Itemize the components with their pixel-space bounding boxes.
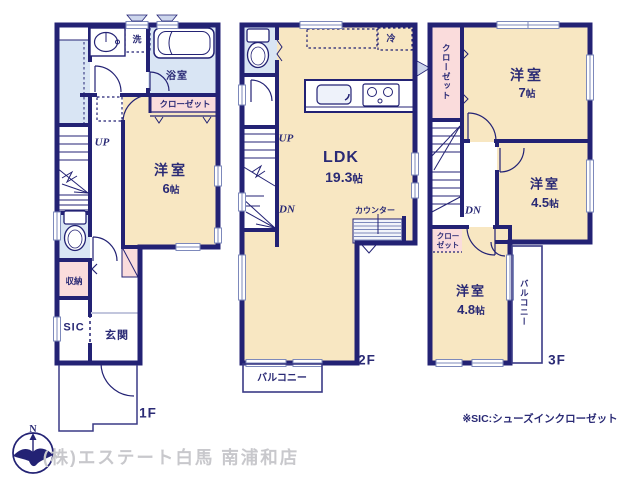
company-name: (株)エステート白馬 南浦和店 [43,449,300,467]
sink-icon [90,28,125,56]
size-unit: 帖 [170,185,180,196]
label-storage: 収納 [65,277,82,286]
label-counter: カウンター [355,207,395,215]
label-sic: SIC [63,323,84,334]
bathtub-icon [154,28,214,58]
floor-label-2f: 2F [358,353,376,367]
porch-outline [59,365,137,431]
kitchen-island-icon [305,80,415,112]
label-bedroom7-size: 7帖 [519,86,536,100]
label-laundry: 洗 [132,36,141,45]
size-unit: 帖 [526,89,536,100]
label-closet-small-2: ゼット [437,241,460,249]
label-bedroom48-size: 4.8帖 [457,303,485,317]
washer-space-icon [97,97,122,121]
label-bedroom45: 洋室 [530,178,560,191]
label-bedroom-1f: 洋室 [154,163,188,177]
label-closet-1f: クローゼット [159,100,210,109]
label-ldk-size: 19.3帖 [325,170,363,185]
toilet-icon-1f [64,211,86,251]
size-number: 4.8 [457,302,475,317]
size-unit: 帖 [475,306,485,317]
stairs-3f-icon [430,126,462,213]
label-bedroom7: 洋室 [510,68,544,82]
label-fridge: 冷 [386,35,395,44]
label-dn-3f: DN [465,206,481,217]
label-up-1f: UP [95,138,110,149]
size-unit: 帖 [549,199,559,210]
sic-note: ※SIC:シューズインクローゼット [462,414,617,425]
label-bedroom-1f-size: 6帖 [163,182,180,196]
label-bathroom: 浴室 [166,72,188,82]
toilet-icon-2f [247,29,269,68]
size-unit: 帖 [352,173,363,185]
shelf-icon [122,247,138,277]
label-closet-small-1: クロー [437,232,460,240]
size-number: 4.5 [531,195,549,210]
label-balcony-3f: バルコニー [520,279,529,327]
floorplan-drawing [0,0,640,480]
label-closet-3f: クローゼット [442,44,451,101]
label-up-2f: UP [279,134,294,145]
compass-north-label: N [29,425,36,435]
door-mark-icon [362,245,376,253]
size-number: 19.3 [325,169,352,185]
label-bedroom45-size: 4.5帖 [531,196,559,210]
label-ldk: LDK [323,150,359,166]
stairs-1f-icon [57,136,90,210]
label-bedroom48: 洋室 [456,285,486,298]
floor-label-1f: 1F [139,406,157,420]
floor-label-3f: 3F [548,353,566,367]
label-balcony-2f: バルコニー [257,374,307,384]
floorplan-1f [54,15,222,431]
label-entrance: 玄関 [105,331,129,342]
floorplan-page: 洗 浴室 クローゼット 洋室 6帖 UP 収納 SIC 玄関 1F 冷 LDK … [0,0,640,480]
label-dn-2f: DN [279,205,295,216]
floorplan-2f [239,22,431,393]
kitchen-sink-icon [317,85,351,104]
